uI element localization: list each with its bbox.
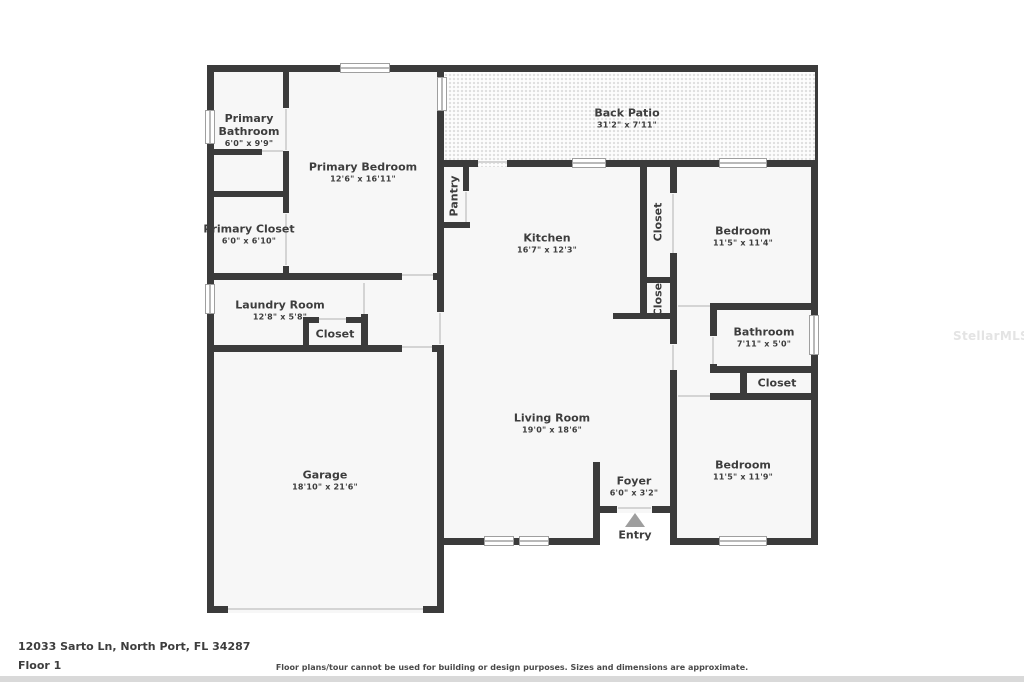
door-line [618,507,651,509]
room-label-closet-bedroom2: Closet [758,377,797,390]
window [484,536,514,546]
window [719,536,767,546]
wall [640,167,647,313]
wall [444,160,478,167]
wall [214,149,262,155]
room-label-primary-bathroom: Primary Bathroom 6'0" x 9'9" [209,112,289,148]
wall [710,303,717,336]
property-address: 12033 Sarto Ln, North Port, FL 34287 [18,640,250,653]
door-line [712,337,714,364]
room-label-primary-bedroom: Primary Bedroom 12'6" x 16'11" [309,161,417,184]
floorplan-canvas: Primary Bathroom 6'0" x 9'9" Primary Bed… [0,0,1024,682]
wall [740,366,818,373]
wall [710,303,818,310]
door-line [465,192,467,222]
window [340,63,390,73]
wall [593,462,600,545]
window [205,284,215,314]
wall [670,167,677,193]
door-line [439,313,441,344]
wall [670,370,677,545]
window [719,158,767,168]
room-label-closet-hall-lower: Closet [652,278,665,317]
window [809,315,819,355]
room-label-pantry: Pantry [448,176,461,217]
wall [361,314,368,352]
door-line [262,150,283,152]
wall [207,273,402,280]
wall [710,364,717,373]
room-label-closet-hall-upper: Closet [652,203,665,242]
window [519,536,549,546]
door-line [402,274,433,276]
door-line [363,283,365,314]
wall [605,160,723,167]
room-label-closet-laundry: Closet [316,328,355,341]
footer-bar [0,676,1024,682]
entry-arrow-icon [625,513,645,527]
wall [214,191,284,197]
room-label-bedroom-upper: Bedroom 11'5" x 11'4" [713,225,773,248]
door-line [478,161,507,163]
entry-label: Entry [618,529,651,542]
wall [444,222,470,228]
room-label-garage: Garage 18'10" x 21'6" [292,469,358,492]
room-label-bedroom-lower: Bedroom 11'5" x 11'9" [713,459,773,482]
wall [815,65,818,162]
room-label-back-patio: Back Patio 31'2" x 7'11" [594,107,659,130]
wall [207,65,818,72]
door-line [678,305,710,307]
wall [283,65,289,108]
wall [283,266,289,280]
wall [303,317,309,352]
room-label-laundry-room: Laundry Room 12'8" x 5'8" [235,299,324,322]
wall [463,163,469,191]
room-label-bathroom: Bathroom 7'11" x 5'0" [734,326,795,349]
window [437,77,447,111]
wall [740,366,747,400]
door-line [402,346,432,348]
disclaimer-text: Floor plans/tour cannot be used for buil… [0,663,1024,672]
wall [283,151,289,213]
room-label-kitchen: Kitchen 16'7" x 12'3" [517,232,577,255]
garage-door-line [228,608,423,610]
wall [613,313,677,319]
room-label-foyer: Foyer 6'0" x 3'2" [610,475,658,498]
window [572,158,606,168]
room-label-primary-closet: Primary Closet 6'0" x 6'10" [203,223,294,246]
wall [710,393,818,400]
wall [670,283,677,344]
wall [507,160,575,167]
wall [670,253,677,277]
door-line [672,345,674,370]
door-line [672,194,674,253]
stellar-mls-watermark: StellarMLS [953,329,1024,343]
wall [437,345,444,613]
room-label-living-room: Living Room 19'0" x 18'6" [514,412,590,435]
door-line [678,395,710,397]
